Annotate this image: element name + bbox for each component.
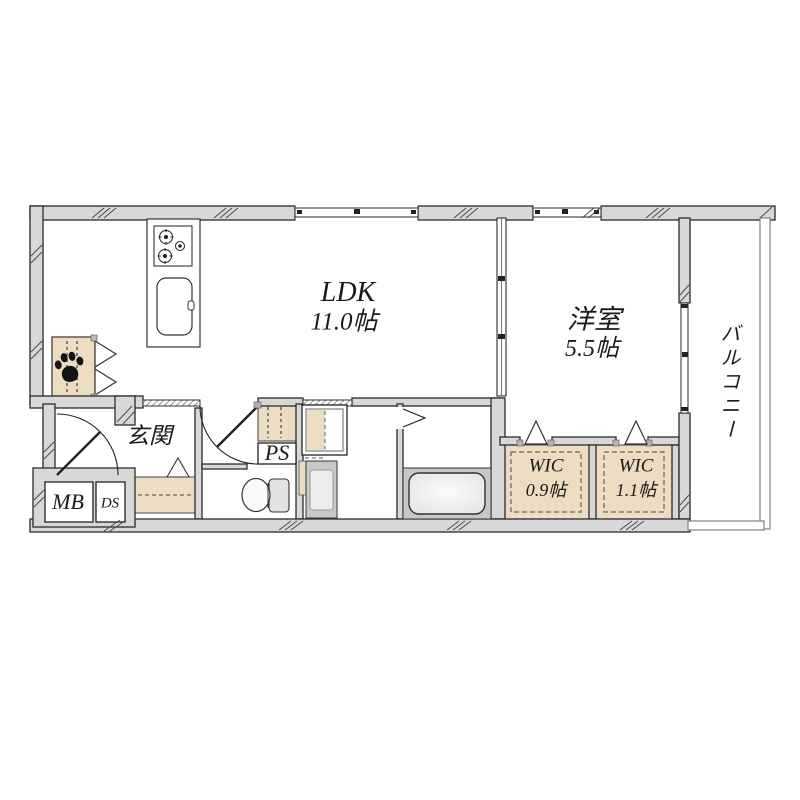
room-area-bedroom: 5.5帖 [565, 337, 619, 361]
floor-plan-drawing [0, 0, 800, 800]
pet-closet [52, 335, 116, 400]
room-label-ps: PS [265, 442, 289, 464]
sliding-partition [497, 218, 506, 396]
floor-plan: LDK 11.0帖 洋室 5.5帖 バルコニー WIC 0.9帖 WIC 1.1… [0, 0, 800, 800]
room-label-ldk: LDK [321, 279, 375, 307]
balcony-window [679, 303, 690, 413]
washbasin [302, 405, 347, 458]
room-label-wic-right: WIC [619, 457, 654, 476]
room-label-balcony: バルコニー [718, 323, 738, 443]
hall-door [200, 402, 261, 464]
bathtub [409, 473, 485, 514]
room-label-ds: DS [101, 497, 119, 512]
room-area-ldk: 11.0帖 [311, 310, 378, 335]
entrance-door [57, 414, 118, 475]
room-area-wic-right: 1.1帖 [616, 481, 657, 499]
room-label-bedroom: 洋室 [567, 307, 621, 334]
kitchen-stove [154, 226, 192, 266]
toilet [242, 479, 289, 513]
room-area-wic-left: 0.9帖 [526, 481, 567, 499]
ldk-window [295, 206, 418, 220]
entrance-sliding-door [143, 400, 200, 406]
kitchen-counter [147, 219, 200, 347]
shoe-cabinet [133, 458, 197, 513]
bedroom-window [533, 206, 601, 220]
room-label-entrance: 玄関 [126, 425, 172, 448]
room-label-wic-left: WIC [529, 457, 564, 476]
washing-machine [299, 461, 337, 518]
kitchen-sink [157, 278, 194, 335]
bathroom [396, 407, 491, 519]
room-label-mb: MB [52, 491, 84, 513]
bathroom-folding-door [403, 409, 425, 427]
pet-closet-door [95, 341, 116, 367]
